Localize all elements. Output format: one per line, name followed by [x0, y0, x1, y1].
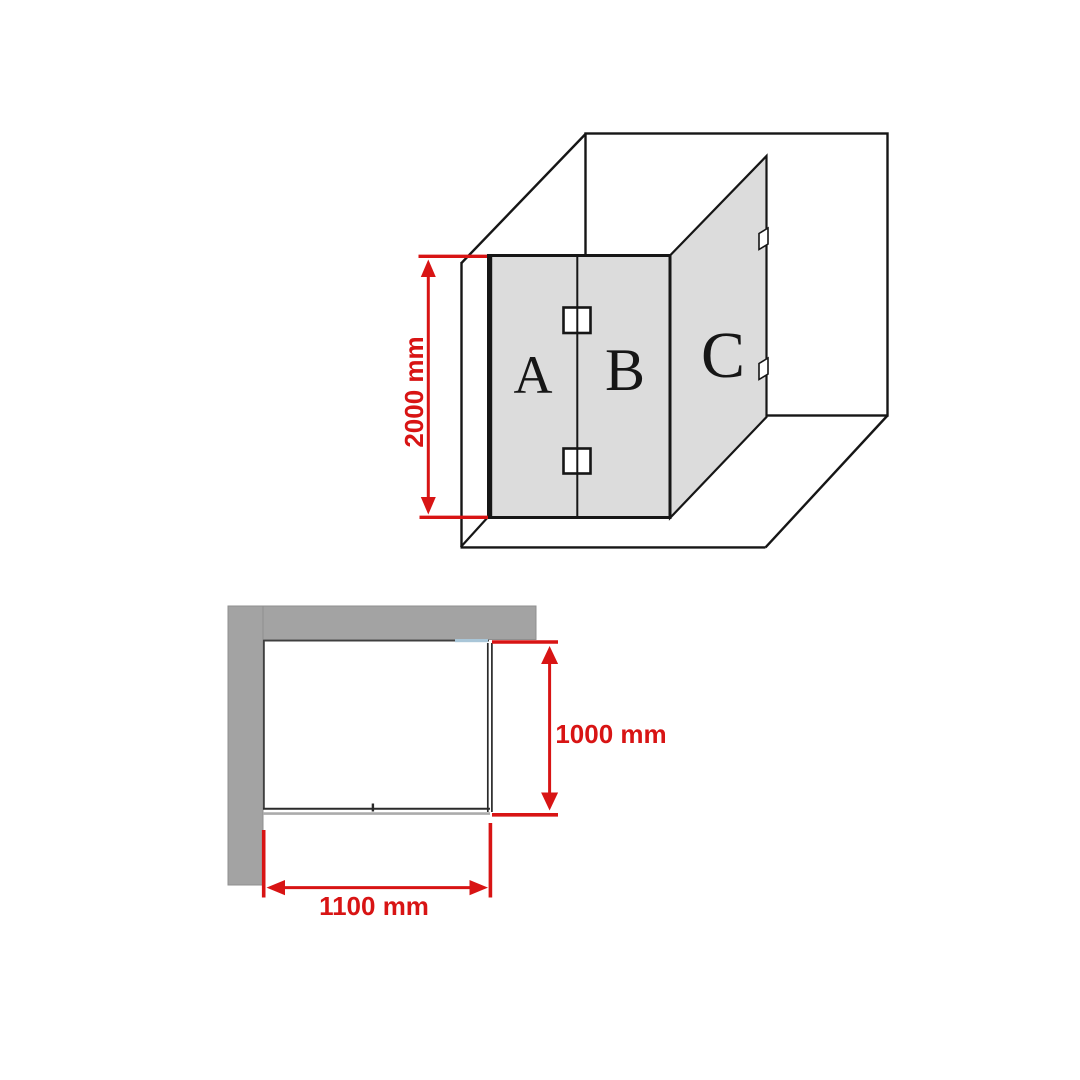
height-dimension: 2000 mm: [399, 256, 488, 517]
wall-top-band: [228, 606, 536, 640]
shower-screen-diagram: A B C 2000 mm: [0, 0, 1080, 1080]
depth-dim-arrow-down-icon: [541, 793, 558, 811]
height-dim-arrow-down-icon: [421, 497, 436, 515]
width-dim-arrow-left-icon: [267, 880, 286, 895]
elevation-view: A B C 2000 mm: [399, 134, 888, 548]
plan-view: 1000 mm 1100 mm: [228, 606, 667, 921]
technical-drawing-canvas: A B C 2000 mm: [0, 0, 1080, 1080]
height-dim-label: 2000 mm: [399, 336, 429, 447]
glass-edge-highlight: [455, 639, 488, 642]
height-dim-arrow-up-icon: [421, 260, 436, 278]
panel-a-label: A: [514, 345, 553, 405]
left-wall-base-edge: [461, 517, 489, 548]
depth-dim-arrow-up-icon: [541, 646, 558, 664]
width-dim-arrow-right-icon: [470, 880, 489, 895]
width-dim-label: 1100 mm: [319, 891, 429, 921]
floor-right-edge: [766, 416, 888, 548]
width-dimension: 1100 mm: [264, 823, 491, 921]
depth-dim-label: 1000 mm: [555, 719, 666, 749]
panel-b-label: B: [605, 337, 645, 403]
wall-left-band: [228, 606, 263, 885]
left-wall-top-edge: [462, 134, 586, 263]
panel-c-label: C: [701, 319, 745, 392]
depth-dimension: 1000 mm: [492, 642, 667, 815]
